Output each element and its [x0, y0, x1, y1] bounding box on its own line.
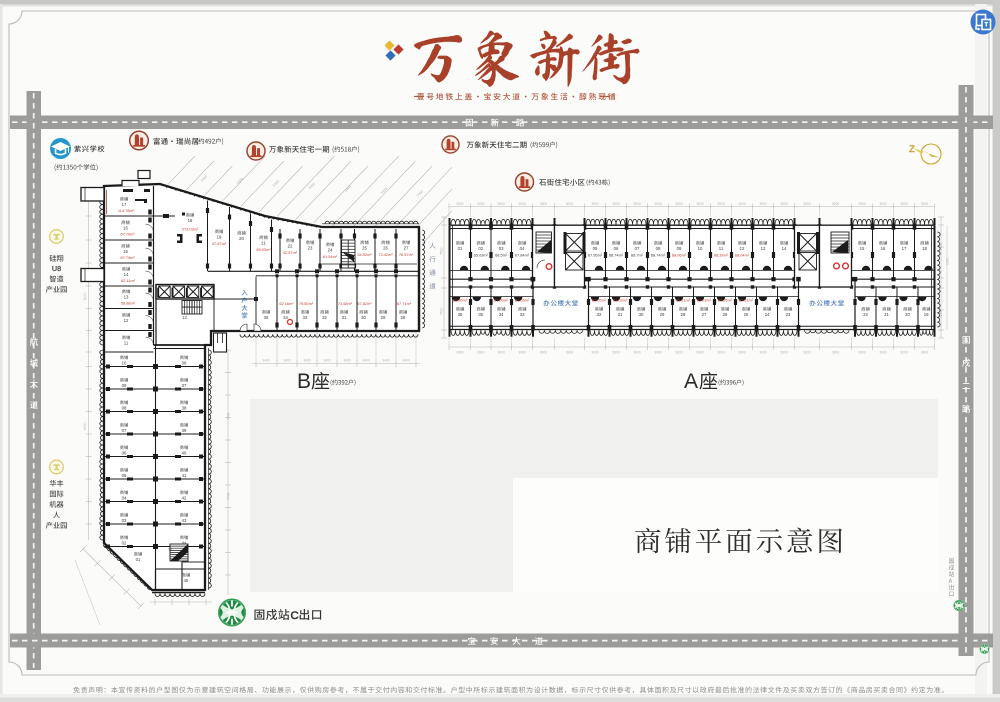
svg-text:87.74m²: 87.74m²	[120, 255, 135, 260]
svg-text:3000: 3000	[498, 351, 506, 355]
svg-text:3000: 3000	[780, 202, 788, 206]
svg-text:30: 30	[639, 312, 644, 317]
svg-text:33: 33	[520, 312, 525, 317]
svg-text:06: 06	[614, 246, 619, 251]
svg-text:3900: 3900	[832, 351, 840, 355]
svg-text:47.87m²: 47.87m²	[212, 241, 227, 246]
svg-text:14: 14	[782, 246, 787, 251]
svg-text:18: 18	[922, 246, 927, 251]
svg-text:21: 21	[261, 240, 266, 245]
svg-text:37: 37	[182, 383, 187, 388]
svg-text:04: 04	[520, 246, 525, 251]
svg-text:35: 35	[478, 312, 483, 317]
svg-text:73.58m²: 73.58m²	[338, 301, 353, 306]
svg-text:11: 11	[719, 246, 724, 251]
svg-text:3900: 3900	[654, 351, 662, 355]
svg-text:28: 28	[401, 315, 406, 320]
svg-text:23: 23	[786, 312, 791, 317]
svg-text:03: 03	[122, 518, 127, 523]
svg-text:3900: 3900	[696, 351, 704, 355]
svg-text:54.92m²: 54.92m²	[357, 252, 372, 257]
svg-text:3900: 3900	[612, 351, 620, 355]
svg-text:40: 40	[182, 450, 187, 455]
svg-text:C: C	[291, 610, 299, 622]
svg-text:3900: 3900	[456, 202, 464, 206]
svg-text:04: 04	[122, 495, 127, 500]
svg-text:67.84m²: 67.84m²	[515, 253, 530, 258]
svg-text:68.39m²: 68.39m²	[714, 253, 729, 258]
svg-text:38: 38	[182, 405, 187, 410]
svg-text:35: 35	[264, 315, 269, 320]
svg-text:3400: 3400	[323, 359, 331, 363]
svg-text:3000: 3000	[477, 202, 485, 206]
svg-text:16: 16	[123, 225, 128, 230]
svg-text:67.51m²: 67.51m²	[739, 298, 754, 303]
svg-text:3000: 3000	[518, 202, 526, 206]
svg-text:19: 19	[924, 312, 929, 317]
svg-text:02: 02	[478, 246, 483, 251]
svg-text:68.04m²: 68.04m²	[735, 253, 750, 258]
svg-text:3000: 3000	[566, 202, 574, 206]
svg-text:13: 13	[761, 246, 766, 251]
svg-text:61.00m²: 61.00m²	[494, 298, 509, 303]
svg-text:57.82m²: 57.82m²	[357, 301, 372, 306]
svg-text:3000: 3000	[540, 351, 548, 355]
svg-text:34: 34	[283, 315, 288, 320]
svg-text:14: 14	[124, 272, 129, 277]
svg-text:62.30m²: 62.30m²	[453, 298, 468, 303]
svg-text:12: 12	[740, 246, 745, 251]
svg-text:45: 45	[184, 578, 189, 583]
svg-text:18: 18	[188, 218, 193, 223]
svg-text:20: 20	[905, 312, 910, 317]
svg-text:7500: 7500	[440, 307, 444, 315]
svg-text:25: 25	[744, 312, 749, 317]
svg-text:11: 11	[124, 340, 129, 345]
svg-text:3000: 3000	[675, 351, 683, 355]
svg-text:17: 17	[122, 202, 127, 207]
svg-text:3000: 3000	[612, 202, 620, 206]
svg-text:15: 15	[860, 246, 865, 251]
svg-text:26: 26	[723, 312, 728, 317]
svg-text:3000: 3000	[456, 351, 464, 355]
svg-text:15: 15	[123, 249, 128, 254]
svg-text:79.50m²: 79.50m²	[299, 301, 314, 306]
svg-text:3000: 3000	[900, 351, 908, 355]
svg-text:U8: U8	[52, 264, 61, 273]
svg-text:16: 16	[881, 246, 886, 251]
svg-text:3900: 3900	[540, 202, 548, 206]
svg-text:27: 27	[702, 312, 707, 317]
svg-text:3400: 3400	[402, 359, 410, 363]
svg-text:29: 29	[381, 315, 386, 320]
svg-text:13: 13	[124, 294, 129, 299]
svg-text:3000: 3000	[696, 202, 704, 206]
svg-text:61.54m²: 61.54m²	[323, 254, 338, 259]
svg-text:22: 22	[288, 243, 293, 248]
svg-text:3900: 3900	[591, 202, 599, 206]
svg-text:3900: 3900	[566, 351, 574, 355]
svg-text:67.95m²: 67.95m²	[588, 253, 603, 258]
svg-text:58.88m²: 58.88m²	[121, 300, 136, 305]
svg-text:3000: 3000	[803, 351, 811, 355]
svg-text:10: 10	[698, 246, 703, 251]
svg-text:6000: 6000	[83, 292, 87, 300]
svg-text:07: 07	[635, 246, 640, 251]
svg-text:61.05m²: 61.05m²	[592, 298, 607, 303]
svg-text:26: 26	[383, 245, 388, 250]
svg-text:3400: 3400	[303, 359, 311, 363]
svg-text:68.7m²: 68.7m²	[631, 253, 644, 258]
svg-text:61.03m²: 61.03m²	[613, 298, 628, 303]
svg-text:31: 31	[618, 312, 623, 317]
svg-text:05: 05	[593, 246, 598, 251]
svg-text:39: 39	[182, 428, 187, 433]
svg-text:27: 27	[404, 245, 409, 250]
svg-text:3000: 3000	[633, 351, 641, 355]
svg-text:19: 19	[217, 234, 222, 239]
svg-text:25: 25	[362, 245, 367, 250]
svg-text:08: 08	[122, 405, 127, 410]
svg-text:3000: 3000	[921, 202, 929, 206]
svg-text:3900: 3900	[858, 202, 866, 206]
svg-text:44: 44	[182, 540, 187, 545]
svg-text:68.74m²: 68.74m²	[609, 253, 624, 258]
svg-text:3400: 3400	[382, 359, 390, 363]
svg-text:3900: 3900	[759, 202, 767, 206]
svg-text:62.16m²: 62.16m²	[279, 301, 294, 306]
svg-text:30: 30	[361, 315, 366, 320]
svg-text:3900: 3900	[780, 351, 788, 355]
svg-text:20: 20	[239, 236, 244, 241]
svg-text:3000: 3000	[654, 202, 662, 206]
svg-text:3400: 3400	[262, 359, 270, 363]
svg-text:36: 36	[182, 360, 187, 365]
svg-text:24: 24	[765, 312, 770, 317]
svg-text:67.70m²: 67.70m²	[120, 231, 135, 236]
svg-text:32: 32	[597, 312, 602, 317]
svg-text:Z: Z	[909, 144, 915, 155]
svg-text:65.03m²: 65.03m²	[474, 253, 489, 258]
svg-text:61.21m²: 61.21m²	[676, 298, 691, 303]
svg-text:T1: T1	[168, 548, 172, 552]
svg-text:3000: 3000	[759, 351, 767, 355]
svg-text:28: 28	[681, 312, 686, 317]
svg-text:3000: 3000	[738, 202, 746, 206]
svg-text:07: 07	[122, 428, 127, 433]
svg-text:6000: 6000	[83, 422, 87, 430]
svg-text:01: 01	[458, 246, 463, 251]
svg-text:21: 21	[884, 312, 889, 317]
svg-text:67.71m²: 67.71m²	[397, 301, 412, 306]
svg-text:68.06m²: 68.06m²	[672, 253, 687, 258]
svg-text:23: 23	[308, 245, 313, 250]
svg-text:32: 32	[322, 315, 327, 320]
svg-text:3900: 3900	[477, 351, 485, 355]
svg-text:10: 10	[122, 360, 127, 365]
svg-text:61.23m²: 61.23m²	[697, 298, 712, 303]
svg-text:68.74m²: 68.74m²	[651, 253, 666, 258]
svg-text:09: 09	[122, 383, 127, 388]
svg-text:24: 24	[328, 247, 333, 252]
svg-text:3900: 3900	[717, 202, 725, 206]
svg-text:06: 06	[122, 450, 127, 455]
svg-text:62.11m²: 62.11m²	[121, 278, 136, 283]
svg-text:08: 08	[656, 246, 661, 251]
svg-text:61.05m²: 61.05m²	[515, 298, 530, 303]
svg-text:3400: 3400	[362, 359, 370, 363]
svg-text:22: 22	[863, 312, 868, 317]
svg-text:3900: 3900	[633, 202, 641, 206]
svg-text:12: 12	[182, 315, 188, 320]
svg-text:02: 02	[122, 540, 127, 545]
svg-text:43: 43	[182, 518, 187, 523]
svg-text:3700: 3700	[227, 492, 231, 500]
svg-text:3000: 3000	[879, 202, 887, 206]
svg-text:09: 09	[677, 246, 682, 251]
svg-text:B: B	[297, 370, 311, 393]
svg-text:36: 36	[458, 312, 463, 317]
svg-text:3900: 3900	[879, 351, 887, 355]
svg-text:31: 31	[342, 315, 347, 320]
svg-text:3000: 3000	[717, 351, 725, 355]
svg-text:05: 05	[122, 473, 127, 478]
svg-text:29: 29	[660, 312, 665, 317]
svg-text:60.95m²: 60.95m²	[718, 298, 733, 303]
svg-text:42: 42	[182, 495, 187, 500]
svg-text:3000: 3000	[591, 351, 599, 355]
svg-text:3900: 3900	[498, 202, 506, 206]
svg-text:01: 01	[136, 557, 141, 562]
svg-text:34: 34	[499, 312, 504, 317]
svg-text:3000: 3000	[832, 202, 840, 206]
svg-text:273.03m²: 273.03m²	[182, 227, 199, 232]
svg-text:3900: 3900	[675, 202, 683, 206]
svg-text:3900: 3900	[738, 351, 746, 355]
svg-text:3700: 3700	[227, 412, 231, 420]
svg-text:03: 03	[499, 246, 504, 251]
svg-text:3400: 3400	[343, 359, 351, 363]
svg-text:1950: 1950	[946, 258, 950, 265]
svg-text:12: 12	[124, 318, 129, 323]
svg-text:3400: 3400	[283, 359, 291, 363]
svg-text:3000: 3000	[858, 351, 866, 355]
svg-text:3900: 3900	[921, 351, 929, 355]
svg-text:A: A	[684, 370, 698, 393]
svg-text:68.5m²: 68.5m²	[495, 253, 508, 258]
svg-text:89.03m²: 89.03m²	[256, 247, 271, 252]
svg-text:114.78m²: 114.78m²	[118, 208, 135, 213]
svg-text:3900: 3900	[518, 351, 526, 355]
svg-text:7500: 7500	[440, 247, 444, 255]
svg-text:73.42m²: 73.42m²	[378, 252, 393, 257]
svg-text:3900: 3900	[900, 202, 908, 206]
svg-text:41: 41	[182, 473, 187, 478]
svg-text:17: 17	[902, 246, 907, 251]
svg-text:33: 33	[303, 315, 308, 320]
svg-text:42.57m²: 42.57m²	[283, 250, 298, 255]
svg-text:76.57m²: 76.57m²	[399, 252, 414, 257]
svg-text:3900: 3900	[803, 202, 811, 206]
